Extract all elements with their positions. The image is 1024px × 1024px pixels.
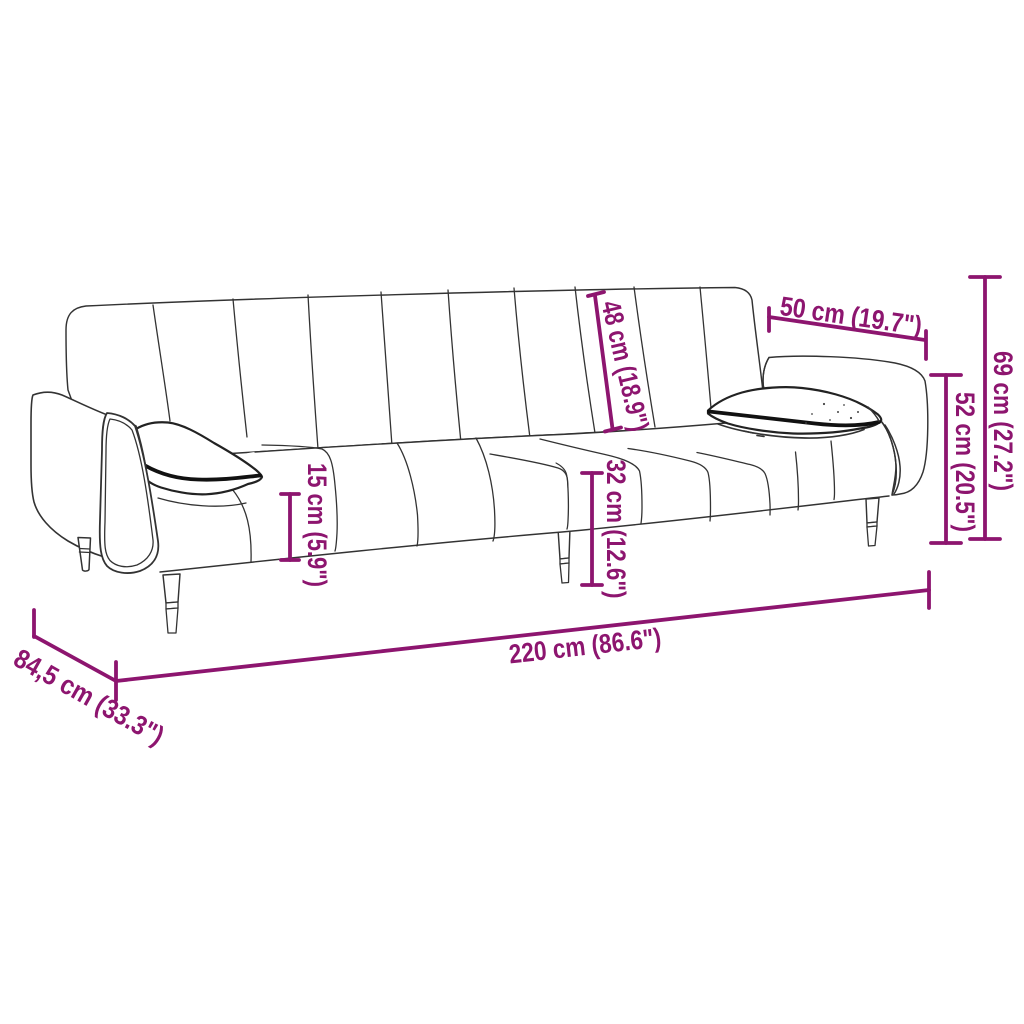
svg-text:69 cm (27.2"): 69 cm (27.2") xyxy=(988,351,1018,491)
svg-text:52 cm (20.5"): 52 cm (20.5") xyxy=(950,392,980,532)
svg-text:15 cm (5.9"): 15 cm (5.9") xyxy=(302,463,332,587)
svg-text:32 cm (12.6"): 32 cm (12.6") xyxy=(601,460,631,599)
